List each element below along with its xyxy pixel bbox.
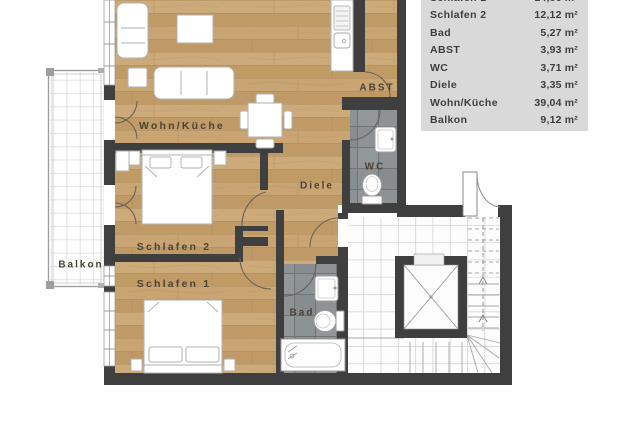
room-label-balkon: Balkon — [58, 260, 103, 271]
stove-icon — [334, 6, 350, 30]
pillow — [149, 347, 182, 362]
legend-room-name: Balkon — [430, 114, 467, 126]
room-label-schlafen2: Schlafen 2 — [137, 241, 212, 253]
furniture-schlafen1 — [131, 300, 235, 373]
pillow — [150, 157, 171, 168]
dresser — [116, 151, 129, 171]
bathtub-icon — [281, 339, 345, 371]
room-label-diele: Diele — [300, 181, 334, 192]
side-table — [128, 68, 147, 87]
legend-room-area: 3,93 m² — [540, 44, 578, 56]
legend-room-area: 5,27 m² — [540, 27, 578, 39]
dining-table — [248, 103, 282, 137]
legend-row: ABST 3,93 m² — [421, 42, 588, 60]
legend-room-area: 12,12 m² — [534, 9, 578, 21]
window-livingroom — [104, 0, 115, 85]
balcony-door-living-opening — [104, 100, 115, 140]
pillow — [181, 157, 202, 168]
legend-room-name: Diele — [430, 79, 457, 91]
bad-toilet-icon — [314, 311, 344, 332]
wc-toilet-icon — [362, 174, 382, 204]
nightstand — [224, 359, 235, 371]
dining-chair-bottom — [256, 139, 274, 148]
nightstand — [131, 359, 142, 371]
room-label-bad: Bad — [290, 308, 315, 319]
room-label-wc: WC — [365, 162, 386, 173]
elevator-door-gap — [414, 254, 444, 265]
pillow — [186, 347, 219, 362]
legend-room-name: WC — [430, 62, 448, 74]
window-schlafen1-small — [104, 266, 115, 286]
legend-room-area: 14,86 m² — [534, 0, 578, 4]
stairwell-door-arc — [477, 174, 500, 207]
legend-room-area: 3,71 m² — [540, 62, 578, 74]
legend-row: Diele 3,35 m² — [421, 77, 588, 95]
legend-row: Balkon 9,12 m² — [421, 112, 588, 130]
legend-room-name: Schlafen 1 — [430, 0, 487, 4]
legend-room-name: Schlafen 2 — [430, 9, 487, 21]
wall-bottom — [104, 373, 512, 385]
legend-room-area: 9,12 m² — [540, 114, 578, 126]
dining-chair-left — [240, 111, 248, 129]
legend-room-area: 3,35 m² — [540, 79, 578, 91]
legend-row: Schlafen 2 12,12 m² — [421, 7, 588, 25]
kitchen — [331, 0, 353, 71]
legend-row: WC 3,71 m² — [421, 59, 588, 77]
window-schlafen1-large — [104, 292, 115, 366]
legend-room-area: 39,04 m² — [534, 97, 578, 109]
balcony-door-schlafen2-opening — [104, 185, 115, 225]
elevator — [395, 254, 467, 338]
room-label-wohn-kueche: Wohn/Küche — [139, 120, 225, 132]
dining-chair-right — [284, 111, 292, 129]
nightstand — [214, 151, 226, 165]
legend-room-name: Wohn/Küche — [430, 97, 498, 109]
schlafen2-door-leaf — [241, 226, 268, 231]
coffee-table — [177, 15, 213, 43]
room-area-legend: Schlafen 1 14,86 m² Schlafen 2 12,12 m² … — [421, 0, 588, 131]
sofa-horizontal — [154, 67, 234, 99]
stairwell-door-leaf — [463, 172, 477, 216]
balcony — [46, 68, 105, 289]
wall-stairwell-right — [500, 205, 512, 385]
room-label-schlafen1: Schlafen 1 — [137, 278, 212, 290]
sofa-vertical — [117, 3, 148, 58]
legend-room-name: ABST — [430, 44, 460, 56]
legend-room-name: Bad — [430, 27, 451, 39]
dining-chair-top — [256, 94, 274, 103]
wall-kitchen — [353, 0, 365, 72]
floorplan-page: Wohn/Küche Schlafen 2 Schlafen 1 Diele B… — [0, 0, 640, 426]
room-label-abst: ABST — [359, 83, 394, 94]
legend-row: Wohn/Küche 39,04 m² — [421, 94, 588, 112]
nightstand — [128, 151, 140, 165]
legend-row: Bad 5,27 m² — [421, 24, 588, 42]
